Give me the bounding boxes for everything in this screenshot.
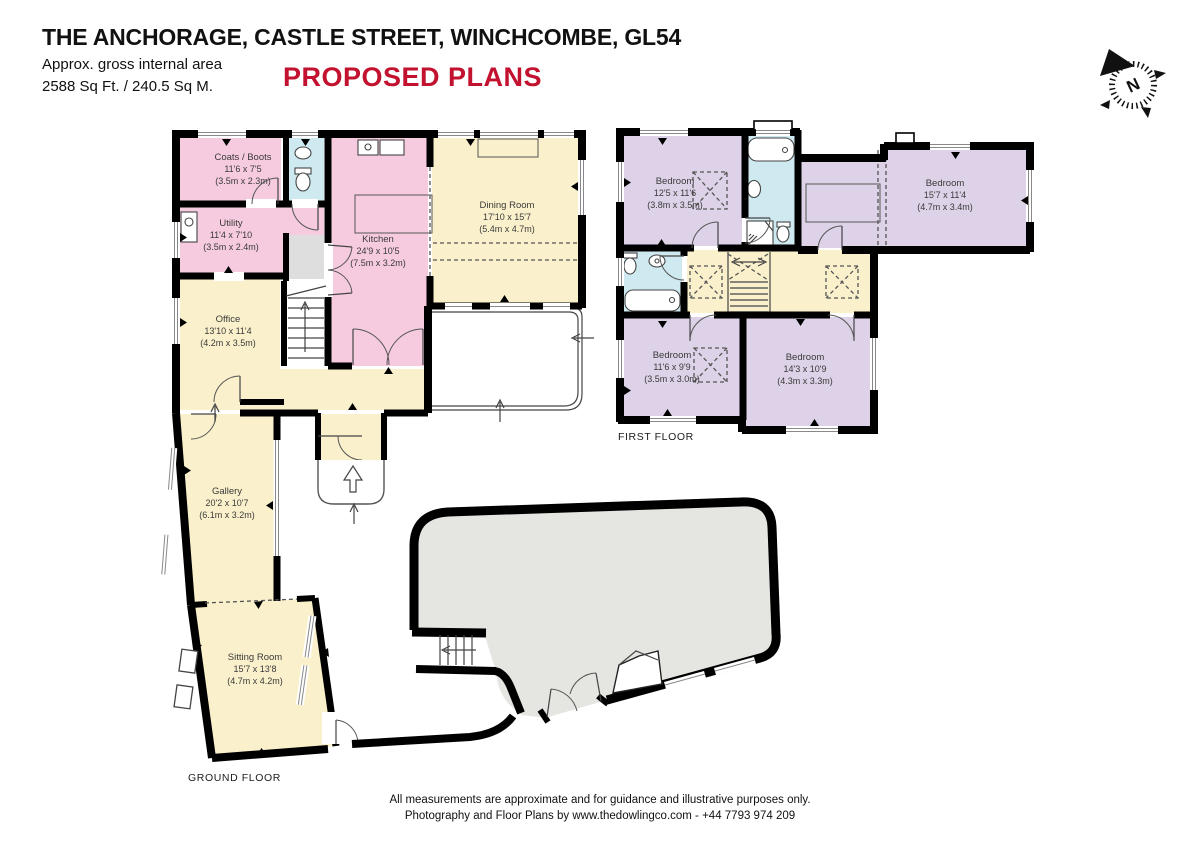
bed1-label: Bedroom (656, 176, 695, 187)
ground-staircase (286, 286, 326, 358)
svg-text:(4.2m x 3.5m): (4.2m x 3.5m) (200, 338, 256, 348)
svg-text:(3.5m x 3.0m): (3.5m x 3.0m) (644, 374, 700, 384)
chimney-2 (896, 133, 914, 143)
svg-text:(3.5m x 2.4m): (3.5m x 2.4m) (203, 242, 259, 252)
compass-n-label: N (1124, 74, 1143, 96)
sitting-label: Sitting Room (228, 652, 282, 663)
bed4-label: Bedroom (786, 352, 825, 363)
svg-text:11'6 x 9'9: 11'6 x 9'9 (653, 362, 690, 372)
svg-text:14'3 x 10'9: 14'3 x 10'9 (784, 364, 827, 374)
compass-south-arrow-icon (1141, 107, 1151, 118)
terrace-outline (430, 308, 582, 410)
utility-label: Utility (219, 218, 242, 229)
svg-text:(6.1m x 3.2m): (6.1m x 3.2m) (199, 510, 255, 520)
bed2-label: Bedroom (926, 178, 965, 189)
entrance-porch (318, 414, 384, 460)
gallery-label: Gallery (212, 486, 242, 497)
svg-text:(3.5m x 2.3m): (3.5m x 2.3m) (215, 176, 271, 186)
credit-text: Photography and Floor Plans by www.thedo… (0, 810, 1200, 822)
svg-text:11'6 x 7'5: 11'6 x 7'5 (224, 164, 261, 174)
bed3-label: Bedroom (653, 350, 692, 361)
first-floor-plan: Bedroom 12'5 x 11'6 (3.8m x 3.5m) Bedroo… (616, 121, 1034, 443)
svg-text:12'5 x 11'6: 12'5 x 11'6 (654, 188, 696, 198)
courtyard-area (352, 502, 776, 744)
room-bed2 (801, 148, 1028, 248)
office-label: Office (216, 314, 241, 325)
external-stairs (440, 635, 476, 665)
svg-text:24'9 x 10'5: 24'9 x 10'5 (357, 246, 400, 256)
disclaimer-text: All measurements are approximate and for… (0, 794, 1200, 806)
svg-text:(5.4m x 4.7m): (5.4m x 4.7m) (479, 224, 535, 234)
coats-label: Coats / Boots (214, 152, 271, 163)
svg-text:(4.3m x 3.3m): (4.3m x 3.3m) (777, 376, 833, 386)
compass-rose: N (1100, 49, 1166, 118)
svg-text:(3.8m x 3.5m): (3.8m x 3.5m) (647, 200, 703, 210)
svg-text:13'10 x 11'4: 13'10 x 11'4 (204, 326, 251, 336)
svg-text:15'7 x 13'8: 15'7 x 13'8 (234, 664, 277, 674)
compass-west-arrow-icon (1100, 100, 1110, 109)
svg-text:(7.5m x 3.2m): (7.5m x 3.2m) (350, 258, 406, 268)
svg-text:15'7 x 11'4: 15'7 x 11'4 (924, 190, 966, 200)
ground-floor-caption: GROUND FLOOR (188, 772, 281, 784)
compass-east-arrow-icon (1154, 70, 1166, 79)
svg-text:17'10 x 15'7: 17'10 x 15'7 (483, 212, 531, 222)
svg-text:20'2 x 10'7: 20'2 x 10'7 (206, 498, 249, 508)
first-floor-caption: FIRST FLOOR (618, 431, 694, 443)
floorplan-page: THE ANCHORAGE, CASTLE STREET, WINCHCOMBE… (0, 0, 1200, 847)
svg-text:11'4 x 7'10: 11'4 x 7'10 (210, 230, 252, 240)
floor-plan-canvas: Coats / Boots 11'6 x 7'5 (3.5m x 2.3m) U… (0, 0, 1200, 847)
svg-text:(4.7m x 3.4m): (4.7m x 3.4m) (917, 202, 973, 212)
stair-landing (285, 235, 324, 279)
kitchen-label: Kitchen (362, 234, 394, 245)
chimney-recess (174, 649, 198, 709)
courtyard-fill (414, 502, 776, 718)
dining-label: Dining Room (480, 200, 535, 211)
svg-text:(4.7m x 4.2m): (4.7m x 4.2m) (227, 676, 283, 686)
